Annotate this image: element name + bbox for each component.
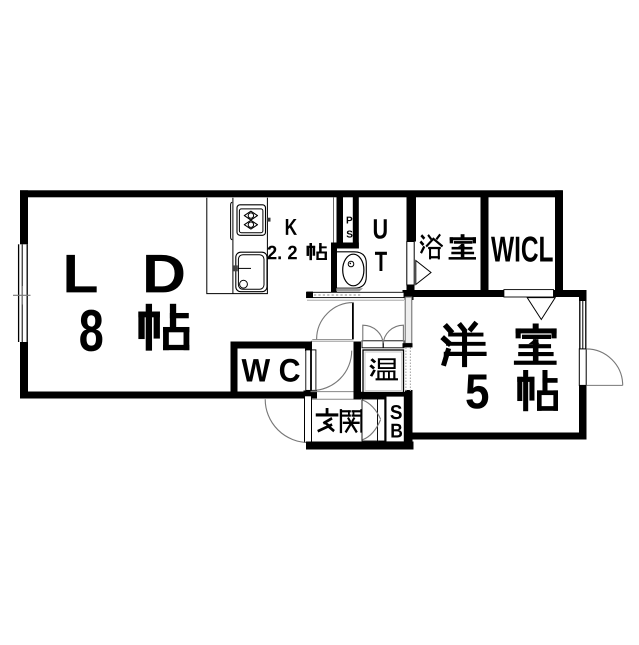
svg-text:K: K bbox=[285, 214, 298, 240]
svg-text:5: 5 bbox=[465, 365, 490, 419]
svg-text:P: P bbox=[346, 216, 353, 227]
svg-text:W C: W C bbox=[241, 353, 300, 389]
svg-text:U: U bbox=[372, 214, 388, 245]
svg-text:2. 2: 2. 2 bbox=[267, 242, 298, 264]
svg-text:L: L bbox=[62, 243, 98, 304]
svg-text:B: B bbox=[390, 421, 403, 443]
svg-text:T: T bbox=[375, 246, 387, 277]
svg-text:8: 8 bbox=[79, 298, 104, 364]
svg-text:WICL: WICL bbox=[491, 229, 554, 270]
svg-text:S: S bbox=[346, 230, 353, 241]
svg-text:D: D bbox=[142, 243, 186, 304]
